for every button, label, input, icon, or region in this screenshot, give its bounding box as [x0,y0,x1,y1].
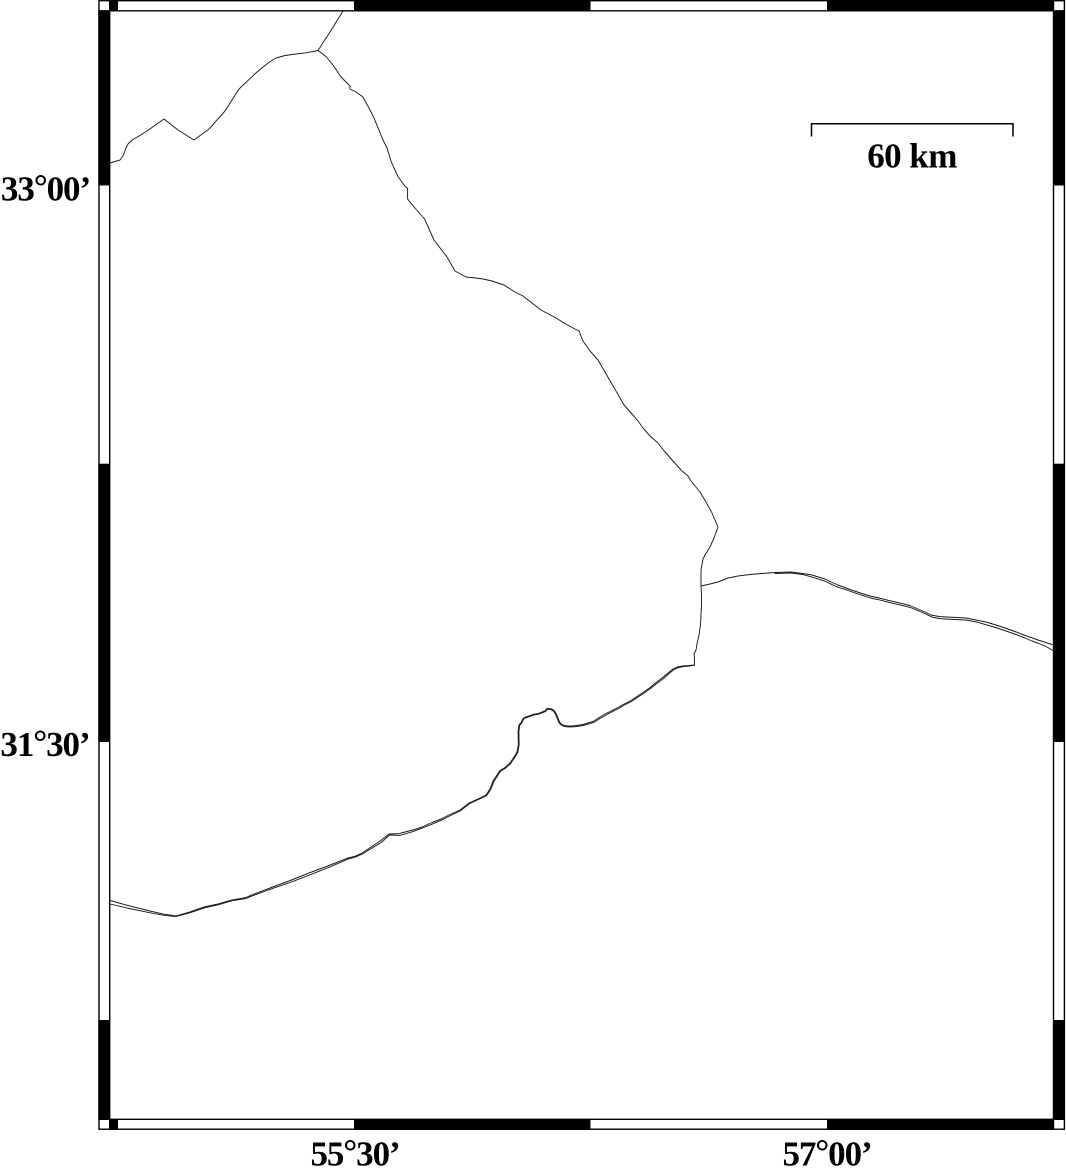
svg-text:31°30’: 31°30’ [0,722,89,764]
svg-text:60 km: 60 km [867,137,957,176]
svg-text:57°00’: 57°00’ [782,1132,871,1168]
svg-text:55°30’: 55°30’ [310,1132,399,1168]
svg-text:33°00’: 33°00’ [1,167,90,209]
